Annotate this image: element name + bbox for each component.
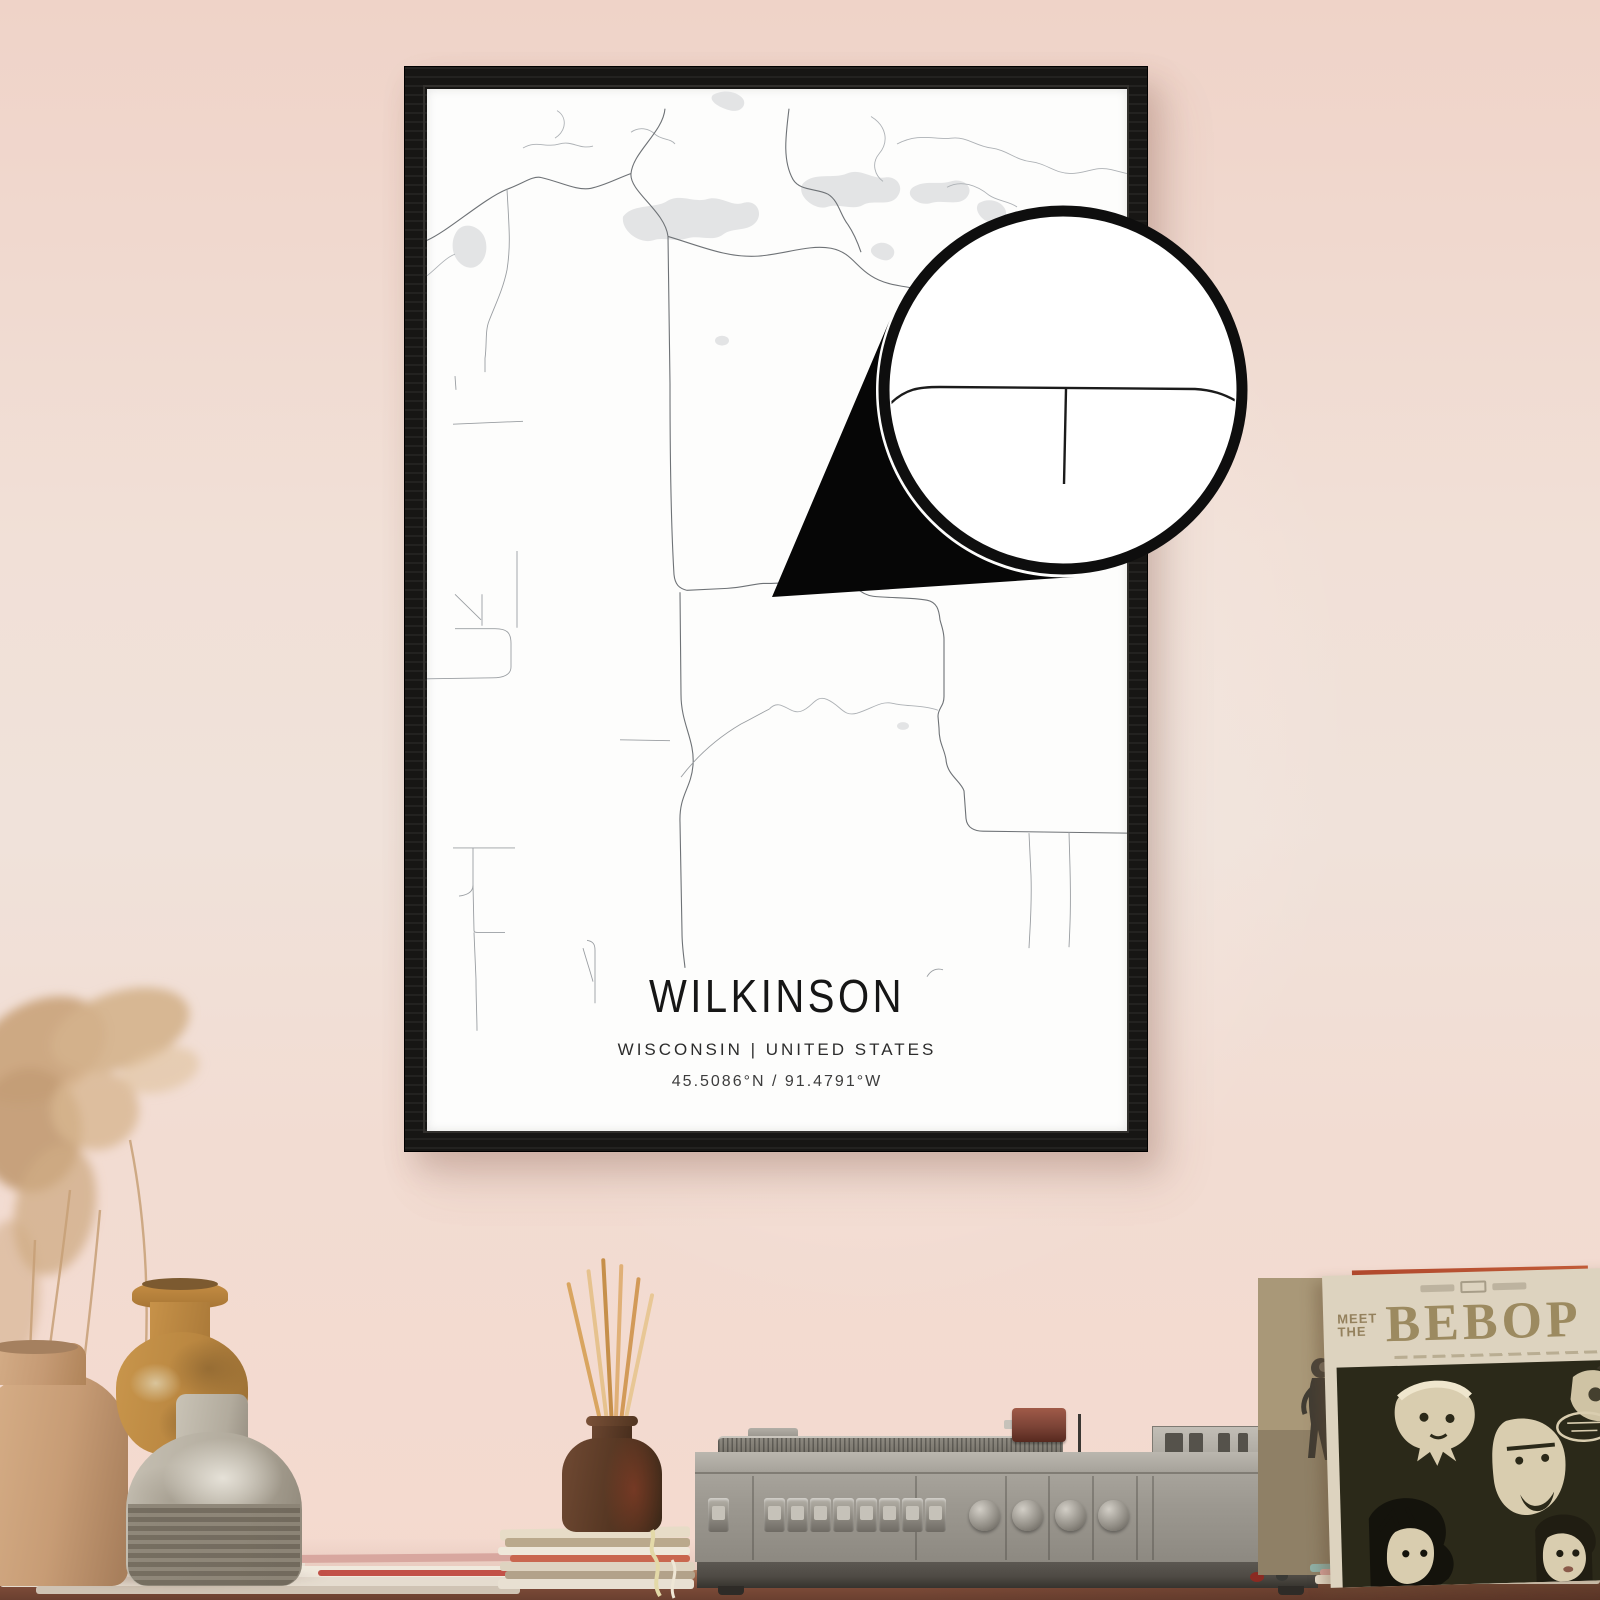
preset-button <box>925 1498 946 1532</box>
preset-button <box>902 1498 923 1532</box>
tan-vase-body <box>0 1372 128 1586</box>
tuning-knob <box>1055 1500 1086 1531</box>
preset-button <box>856 1498 877 1532</box>
preset-button <box>764 1498 785 1532</box>
volume-knob <box>969 1500 1000 1531</box>
label-logo <box>1460 1280 1486 1293</box>
ochre-vase-mouth <box>142 1278 218 1290</box>
gray-vase-ribs <box>128 1504 300 1586</box>
player-foot <box>718 1586 744 1595</box>
poster-caption: WILKINSON WISCONSIN | UNITED STATES 45.5… <box>427 969 1127 1091</box>
poster-coordinates: 45.5086°N / 91.4791°W <box>427 1073 1127 1091</box>
panel-seam <box>1005 1476 1007 1560</box>
sleeve-word-bebop: BEBOP <box>1385 1297 1582 1348</box>
balance-knob <box>1098 1500 1129 1531</box>
panel-seam <box>752 1476 754 1560</box>
preset-button <box>810 1498 831 1532</box>
sleeve-word-the: THE <box>1337 1324 1377 1338</box>
player-deck <box>695 1452 1320 1474</box>
poster-title: WILKINSON <box>473 969 1082 1023</box>
power-button <box>708 1498 729 1532</box>
panel-seam <box>1152 1476 1154 1560</box>
art-jet <box>1491 1417 1567 1516</box>
sleeve-title: MEET THE BEBOP <box>1337 1297 1583 1350</box>
bottle-lip <box>586 1416 638 1426</box>
label-mark <box>1492 1282 1526 1290</box>
tonearm-cartridge <box>1012 1408 1066 1442</box>
player-base <box>697 1562 1318 1588</box>
sleeve-artwork <box>1337 1360 1600 1588</box>
sleeve-art-figures <box>1337 1360 1600 1588</box>
label-mark <box>1420 1284 1454 1292</box>
player-foot <box>1278 1586 1304 1595</box>
panel-seam <box>1092 1476 1094 1560</box>
record-sleeve: MEET THE BEBOP <box>1322 1268 1600 1588</box>
preset-button <box>879 1498 900 1532</box>
panel-seam <box>1136 1476 1138 1560</box>
panel-seam <box>1048 1476 1050 1560</box>
poster-subtitle: WISCONSIN | UNITED STATES <box>427 1040 1127 1060</box>
room-scene: WILKINSON WISCONSIN | UNITED STATES 45.5… <box>0 0 1600 1600</box>
magnifier-callout <box>730 160 1290 680</box>
preset-button <box>787 1498 808 1532</box>
cables <box>630 1510 710 1600</box>
tone-knob <box>1012 1500 1043 1531</box>
preset-button <box>833 1498 854 1532</box>
